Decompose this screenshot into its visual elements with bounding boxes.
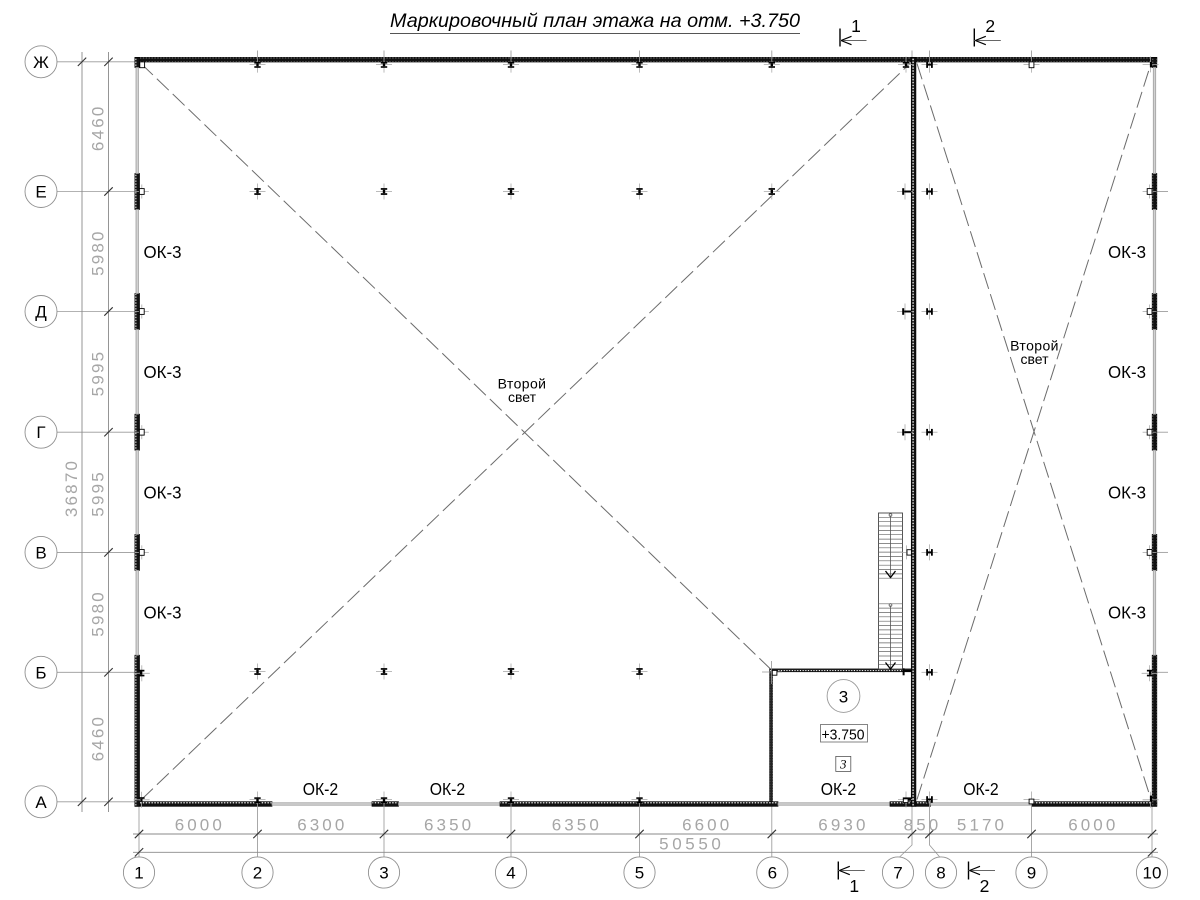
svg-text:6: 6 xyxy=(768,864,777,883)
svg-text:3: 3 xyxy=(839,688,848,707)
svg-text:ОК-3: ОК-3 xyxy=(144,603,182,623)
svg-text:10: 10 xyxy=(1143,864,1162,883)
svg-text:ОК-3: ОК-3 xyxy=(1108,242,1146,262)
svg-text:36870: 36870 xyxy=(62,459,81,517)
svg-text:6600: 6600 xyxy=(682,816,732,835)
svg-text:6350: 6350 xyxy=(552,816,602,835)
svg-text:9: 9 xyxy=(1027,864,1036,883)
svg-text:6460: 6460 xyxy=(89,715,108,762)
svg-text:В: В xyxy=(35,543,46,562)
svg-text:ОК-2: ОК-2 xyxy=(963,779,999,799)
svg-text:+3.750: +3.750 xyxy=(822,727,865,743)
svg-text:ОК-3: ОК-3 xyxy=(144,483,182,503)
svg-text:ОК-3: ОК-3 xyxy=(1108,483,1146,503)
svg-text:1: 1 xyxy=(134,864,143,883)
svg-text:3: 3 xyxy=(839,756,847,771)
svg-text:Б: Б xyxy=(35,663,46,682)
svg-text:свет: свет xyxy=(1020,351,1049,367)
svg-text:4: 4 xyxy=(506,864,515,883)
svg-text:2: 2 xyxy=(253,864,262,883)
svg-text:3: 3 xyxy=(379,864,388,883)
svg-text:6350: 6350 xyxy=(424,816,474,835)
svg-text:5980: 5980 xyxy=(89,590,108,637)
svg-text:5995: 5995 xyxy=(89,350,108,397)
svg-text:ОК-2: ОК-2 xyxy=(430,779,466,799)
svg-text:Маркировочный план этажа на от: Маркировочный план этажа на отм. +3.750 xyxy=(390,11,800,32)
svg-text:Д: Д xyxy=(35,303,47,322)
svg-text:5980: 5980 xyxy=(89,229,108,276)
svg-text:А: А xyxy=(35,793,47,812)
svg-text:6000: 6000 xyxy=(1068,816,1118,835)
svg-text:50550: 50550 xyxy=(659,834,724,853)
svg-text:8: 8 xyxy=(936,864,945,883)
svg-text:ОК-2: ОК-2 xyxy=(303,779,339,799)
svg-text:Г: Г xyxy=(36,423,45,442)
svg-text:1: 1 xyxy=(849,876,859,896)
svg-text:ОК-3: ОК-3 xyxy=(1108,362,1146,382)
svg-text:6300: 6300 xyxy=(297,816,347,835)
svg-text:ОК-3: ОК-3 xyxy=(1108,603,1146,623)
svg-text:6460: 6460 xyxy=(89,104,108,151)
svg-text:6930: 6930 xyxy=(818,816,868,835)
svg-text:5170: 5170 xyxy=(957,816,1007,835)
svg-text:ОК-2: ОК-2 xyxy=(821,779,857,799)
svg-text:2: 2 xyxy=(980,876,990,896)
svg-text:2: 2 xyxy=(985,16,995,36)
svg-text:свет: свет xyxy=(508,389,537,405)
svg-text:ОК-3: ОК-3 xyxy=(144,362,182,382)
svg-text:Е: Е xyxy=(35,183,46,202)
svg-text:5: 5 xyxy=(635,864,644,883)
svg-text:7: 7 xyxy=(893,864,902,883)
svg-text:6000: 6000 xyxy=(175,816,225,835)
svg-text:850: 850 xyxy=(904,816,942,835)
svg-text:ОК-3: ОК-3 xyxy=(144,242,182,262)
svg-text:Ж: Ж xyxy=(33,53,49,72)
svg-text:5995: 5995 xyxy=(89,470,108,517)
svg-text:1: 1 xyxy=(851,16,861,36)
